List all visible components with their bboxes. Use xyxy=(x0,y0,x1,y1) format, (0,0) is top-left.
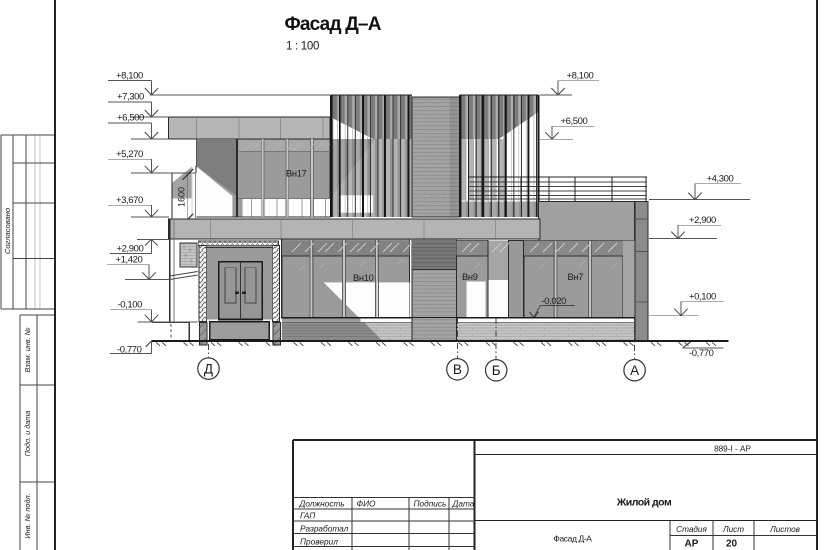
svg-text:Стадия: Стадия xyxy=(676,525,707,534)
svg-text:+7,300: +7,300 xyxy=(117,92,144,103)
svg-text:Вн7: Вн7 xyxy=(568,272,584,282)
svg-text:Разработал: Разработал xyxy=(300,523,349,533)
svg-text:Взам. инв. №: Взам. инв. № xyxy=(23,327,32,372)
svg-text:+8,100: +8,100 xyxy=(116,70,143,81)
svg-text:+3,670: +3,670 xyxy=(116,195,143,206)
svg-text:Согласовано: Согласовано xyxy=(3,208,12,254)
svg-text:Листов: Листов xyxy=(769,525,801,534)
svg-text:Должность: Должность xyxy=(299,499,345,509)
svg-text:889-I - АР: 889-I - АР xyxy=(714,445,751,454)
svg-text:Вн17: Вн17 xyxy=(286,169,307,179)
svg-text:Инв. № подл.: Инв. № подл. xyxy=(23,493,32,538)
svg-text:+1,420: +1,420 xyxy=(116,255,143,266)
svg-text:+0,100: +0,100 xyxy=(689,292,716,303)
svg-text:Подп. и дата: Подп. и дата xyxy=(23,411,32,457)
svg-text:ГАП: ГАП xyxy=(300,511,316,521)
svg-text:Подпись: Подпись xyxy=(414,499,447,509)
svg-text:20: 20 xyxy=(726,539,738,550)
svg-text:-0,770: -0,770 xyxy=(689,348,714,359)
svg-text:-0,100: -0,100 xyxy=(118,300,143,311)
svg-text:Лист: Лист xyxy=(722,525,744,534)
svg-text:+2,900: +2,900 xyxy=(117,244,144,255)
svg-text:1 : 100: 1 : 100 xyxy=(286,41,319,53)
svg-text:Жилой дом: Жилой дом xyxy=(616,497,672,509)
svg-text:Фасад Д-А: Фасад Д-А xyxy=(553,534,592,544)
svg-text:Дата: Дата xyxy=(452,499,475,509)
svg-text:А: А xyxy=(630,363,639,378)
svg-text:Вн10: Вн10 xyxy=(353,273,374,283)
svg-text:Фасад Д–А: Фасад Д–А xyxy=(285,14,382,35)
svg-text:В: В xyxy=(453,362,462,377)
svg-text:АР: АР xyxy=(685,539,699,550)
svg-text:+8,100: +8,100 xyxy=(567,71,594,82)
svg-text:Проверил: Проверил xyxy=(300,537,338,547)
svg-text:1600: 1600 xyxy=(177,187,187,207)
svg-text:+2,900: +2,900 xyxy=(689,215,716,226)
svg-text:+5,270: +5,270 xyxy=(116,149,143,160)
svg-text:Д: Д xyxy=(204,361,213,376)
svg-text:Вн9: Вн9 xyxy=(462,272,478,282)
svg-text:+6,500: +6,500 xyxy=(561,116,588,127)
svg-text:ФИО: ФИО xyxy=(357,499,377,509)
svg-text:+6,500: +6,500 xyxy=(117,113,144,124)
svg-text:Б: Б xyxy=(492,363,501,378)
svg-text:+4,300: +4,300 xyxy=(707,174,734,185)
